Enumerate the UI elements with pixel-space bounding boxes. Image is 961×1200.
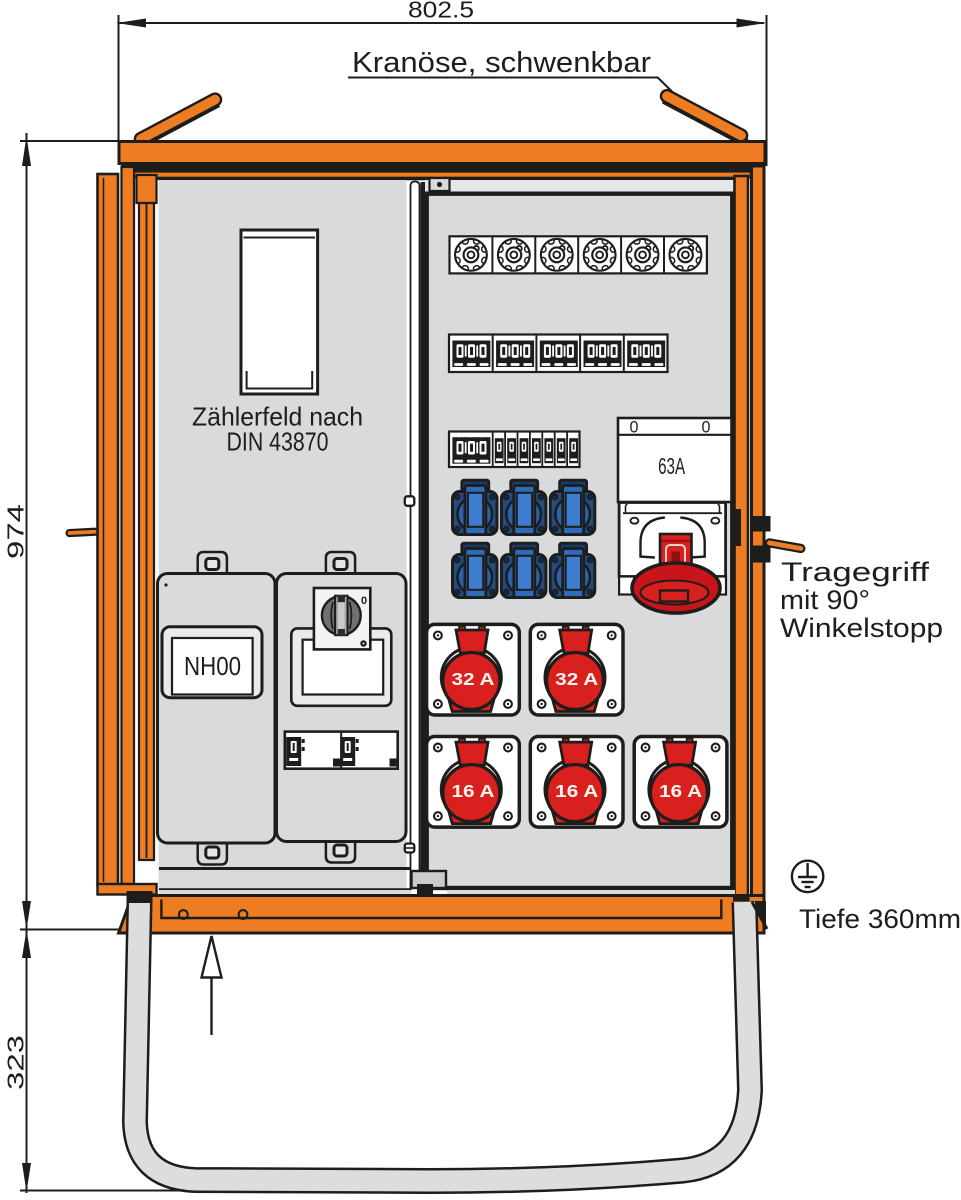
svg-text:Tiefe 360mm: Tiefe 360mm (799, 904, 961, 934)
svg-text:802.5: 802.5 (408, 0, 474, 23)
svg-text:Tragegriff: Tragegriff (781, 557, 930, 587)
svg-text:0: 0 (630, 419, 639, 437)
svg-text:Kranöse, schwenkbar: Kranöse, schwenkbar (352, 47, 651, 79)
svg-text:16 A: 16 A (452, 781, 495, 801)
svg-text:323: 323 (3, 1035, 29, 1090)
svg-text:0: 0 (361, 595, 367, 607)
svg-text:32 A: 32 A (452, 669, 495, 689)
svg-text:16 A: 16 A (555, 781, 598, 801)
svg-text:0: 0 (702, 419, 711, 437)
svg-text:974: 974 (3, 504, 29, 559)
svg-text:NH00: NH00 (184, 651, 241, 681)
svg-text:mit 90°: mit 90° (780, 585, 870, 615)
svg-text:32 A: 32 A (555, 669, 598, 689)
svg-text:Winkelstopp: Winkelstopp (780, 613, 943, 643)
svg-text:DIN 43870: DIN 43870 (227, 427, 329, 457)
svg-text:16 A: 16 A (659, 781, 702, 801)
svg-text:63A: 63A (658, 453, 685, 479)
